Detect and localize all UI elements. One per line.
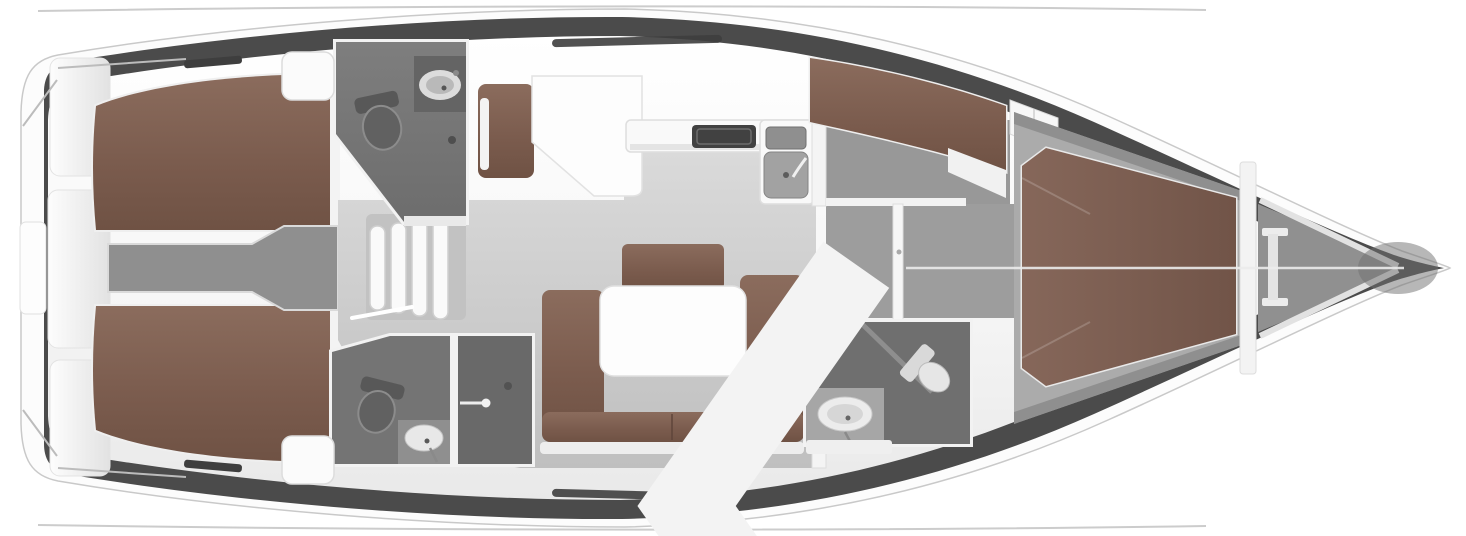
salon-bulkhead-upper xyxy=(812,120,826,206)
cockpit-locker-top xyxy=(282,52,334,100)
chevron-right-icon xyxy=(1406,242,1466,536)
chevron-left-icon xyxy=(34,238,1466,536)
head-door xyxy=(404,216,466,226)
yacht-floor-plan-image xyxy=(0,0,1466,536)
shower-drain xyxy=(448,136,456,144)
faucet xyxy=(453,70,459,76)
carousel-prev-button[interactable] xyxy=(34,238,60,298)
sink-small xyxy=(766,127,806,149)
carousel-next-button[interactable] xyxy=(1406,242,1434,294)
